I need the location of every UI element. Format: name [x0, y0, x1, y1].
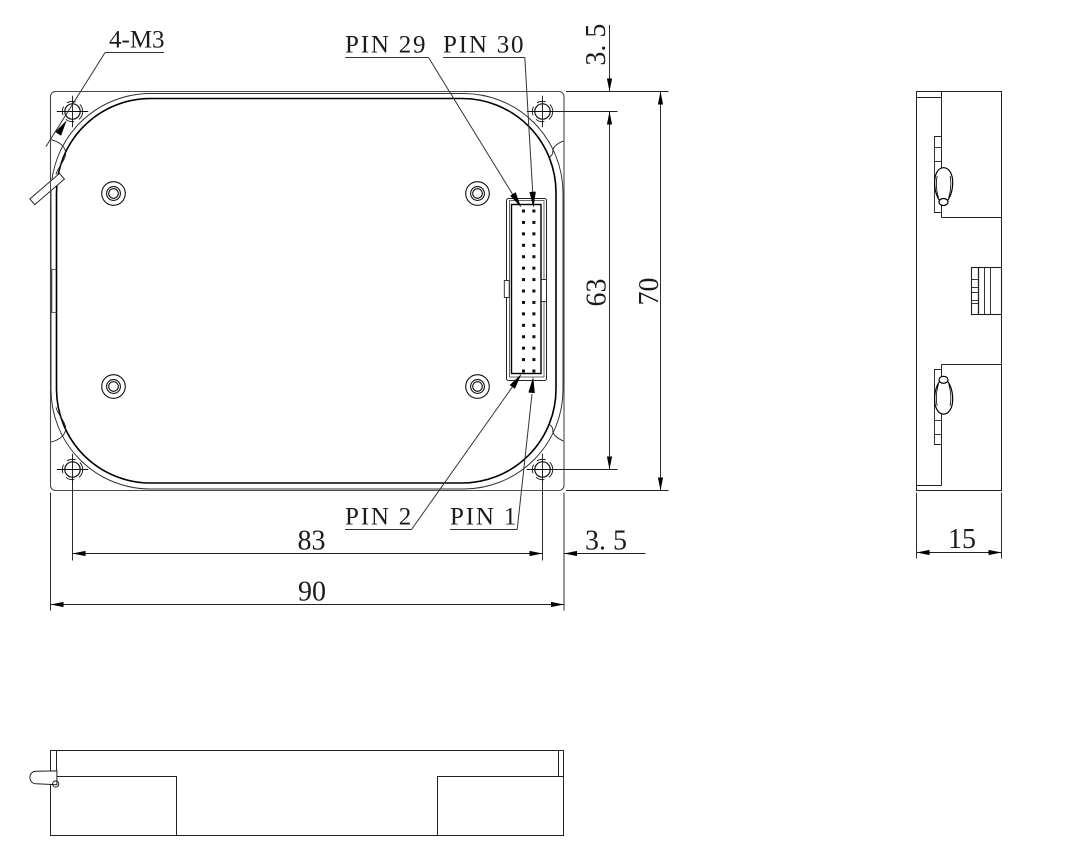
svg-text:PIN 1: PIN 1 — [450, 504, 518, 531]
svg-text:4-M3: 4-M3 — [109, 27, 165, 54]
svg-text:PIN 2: PIN 2 — [345, 504, 413, 531]
svg-text:PIN 29: PIN 29 — [345, 32, 427, 59]
svg-text:83: 83 — [298, 526, 326, 557]
svg-text:3. 5: 3. 5 — [581, 24, 612, 66]
svg-text:3. 5: 3. 5 — [585, 526, 627, 557]
svg-text:15: 15 — [948, 524, 976, 555]
svg-text:PIN 30: PIN 30 — [443, 32, 525, 59]
svg-text:63: 63 — [582, 279, 613, 307]
svg-text:90: 90 — [298, 577, 326, 608]
